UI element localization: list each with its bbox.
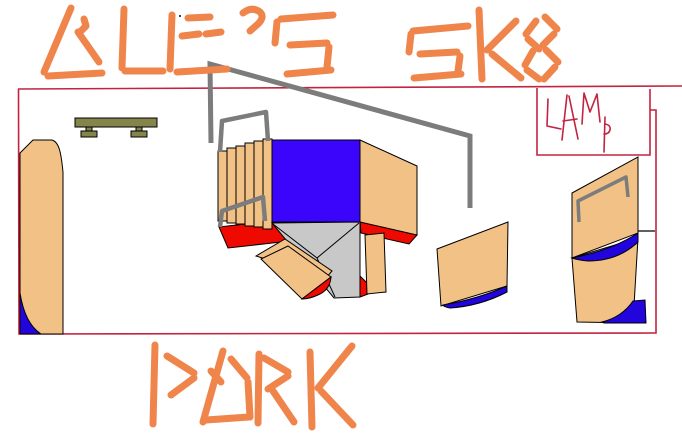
bench-seat	[75, 118, 157, 127]
letter-S2	[409, 26, 468, 78]
ledge-panel	[365, 233, 386, 294]
stair-step	[245, 143, 254, 226]
skatepark-drawing: ALE'S SK8 PARK LAMP	[0, 0, 682, 444]
letter-R	[258, 354, 294, 423]
lamp-letter-M	[582, 93, 600, 124]
lamp-box-outline	[537, 88, 650, 155]
letter-E	[170, 15, 227, 72]
paint-canvas: ALE'S SK8 PARK LAMP ALE'S SK8 PARK LAMP	[0, 0, 682, 444]
title-line1-art: ALE'S SK8	[44, 8, 558, 79]
bench	[75, 118, 157, 137]
letter-K2	[310, 346, 353, 427]
bench-right-leg-foot	[131, 131, 147, 137]
letter-apostrophe	[243, 9, 262, 31]
funbox-right-face	[360, 140, 417, 235]
title-line2-art: PARK	[153, 345, 353, 427]
letter-L	[122, 9, 163, 71]
bench-left-leg-foot	[81, 131, 97, 137]
letter-P	[153, 345, 194, 424]
kicker-ramp	[437, 222, 508, 308]
letter-A	[44, 8, 102, 76]
lamp-letter-L	[547, 99, 561, 129]
lamp-letter-p	[604, 117, 610, 152]
lamp-letter-A	[562, 95, 578, 140]
letter-K	[479, 10, 521, 79]
stair-step	[227, 148, 236, 223]
border-top-line	[18, 86, 682, 89]
lamp-label-art: LAMP	[547, 93, 610, 152]
letter-A2	[203, 351, 250, 422]
letter-8	[525, 17, 558, 79]
left-quarter-pipe-face	[20, 140, 63, 334]
letter-S1	[275, 15, 333, 74]
stair-step	[236, 146, 245, 224]
right-ramp	[572, 157, 655, 323]
stray-dot	[179, 15, 181, 17]
left-quarter-pipe	[20, 140, 63, 334]
funbox-front-face	[272, 140, 360, 222]
stair-step	[254, 141, 263, 227]
